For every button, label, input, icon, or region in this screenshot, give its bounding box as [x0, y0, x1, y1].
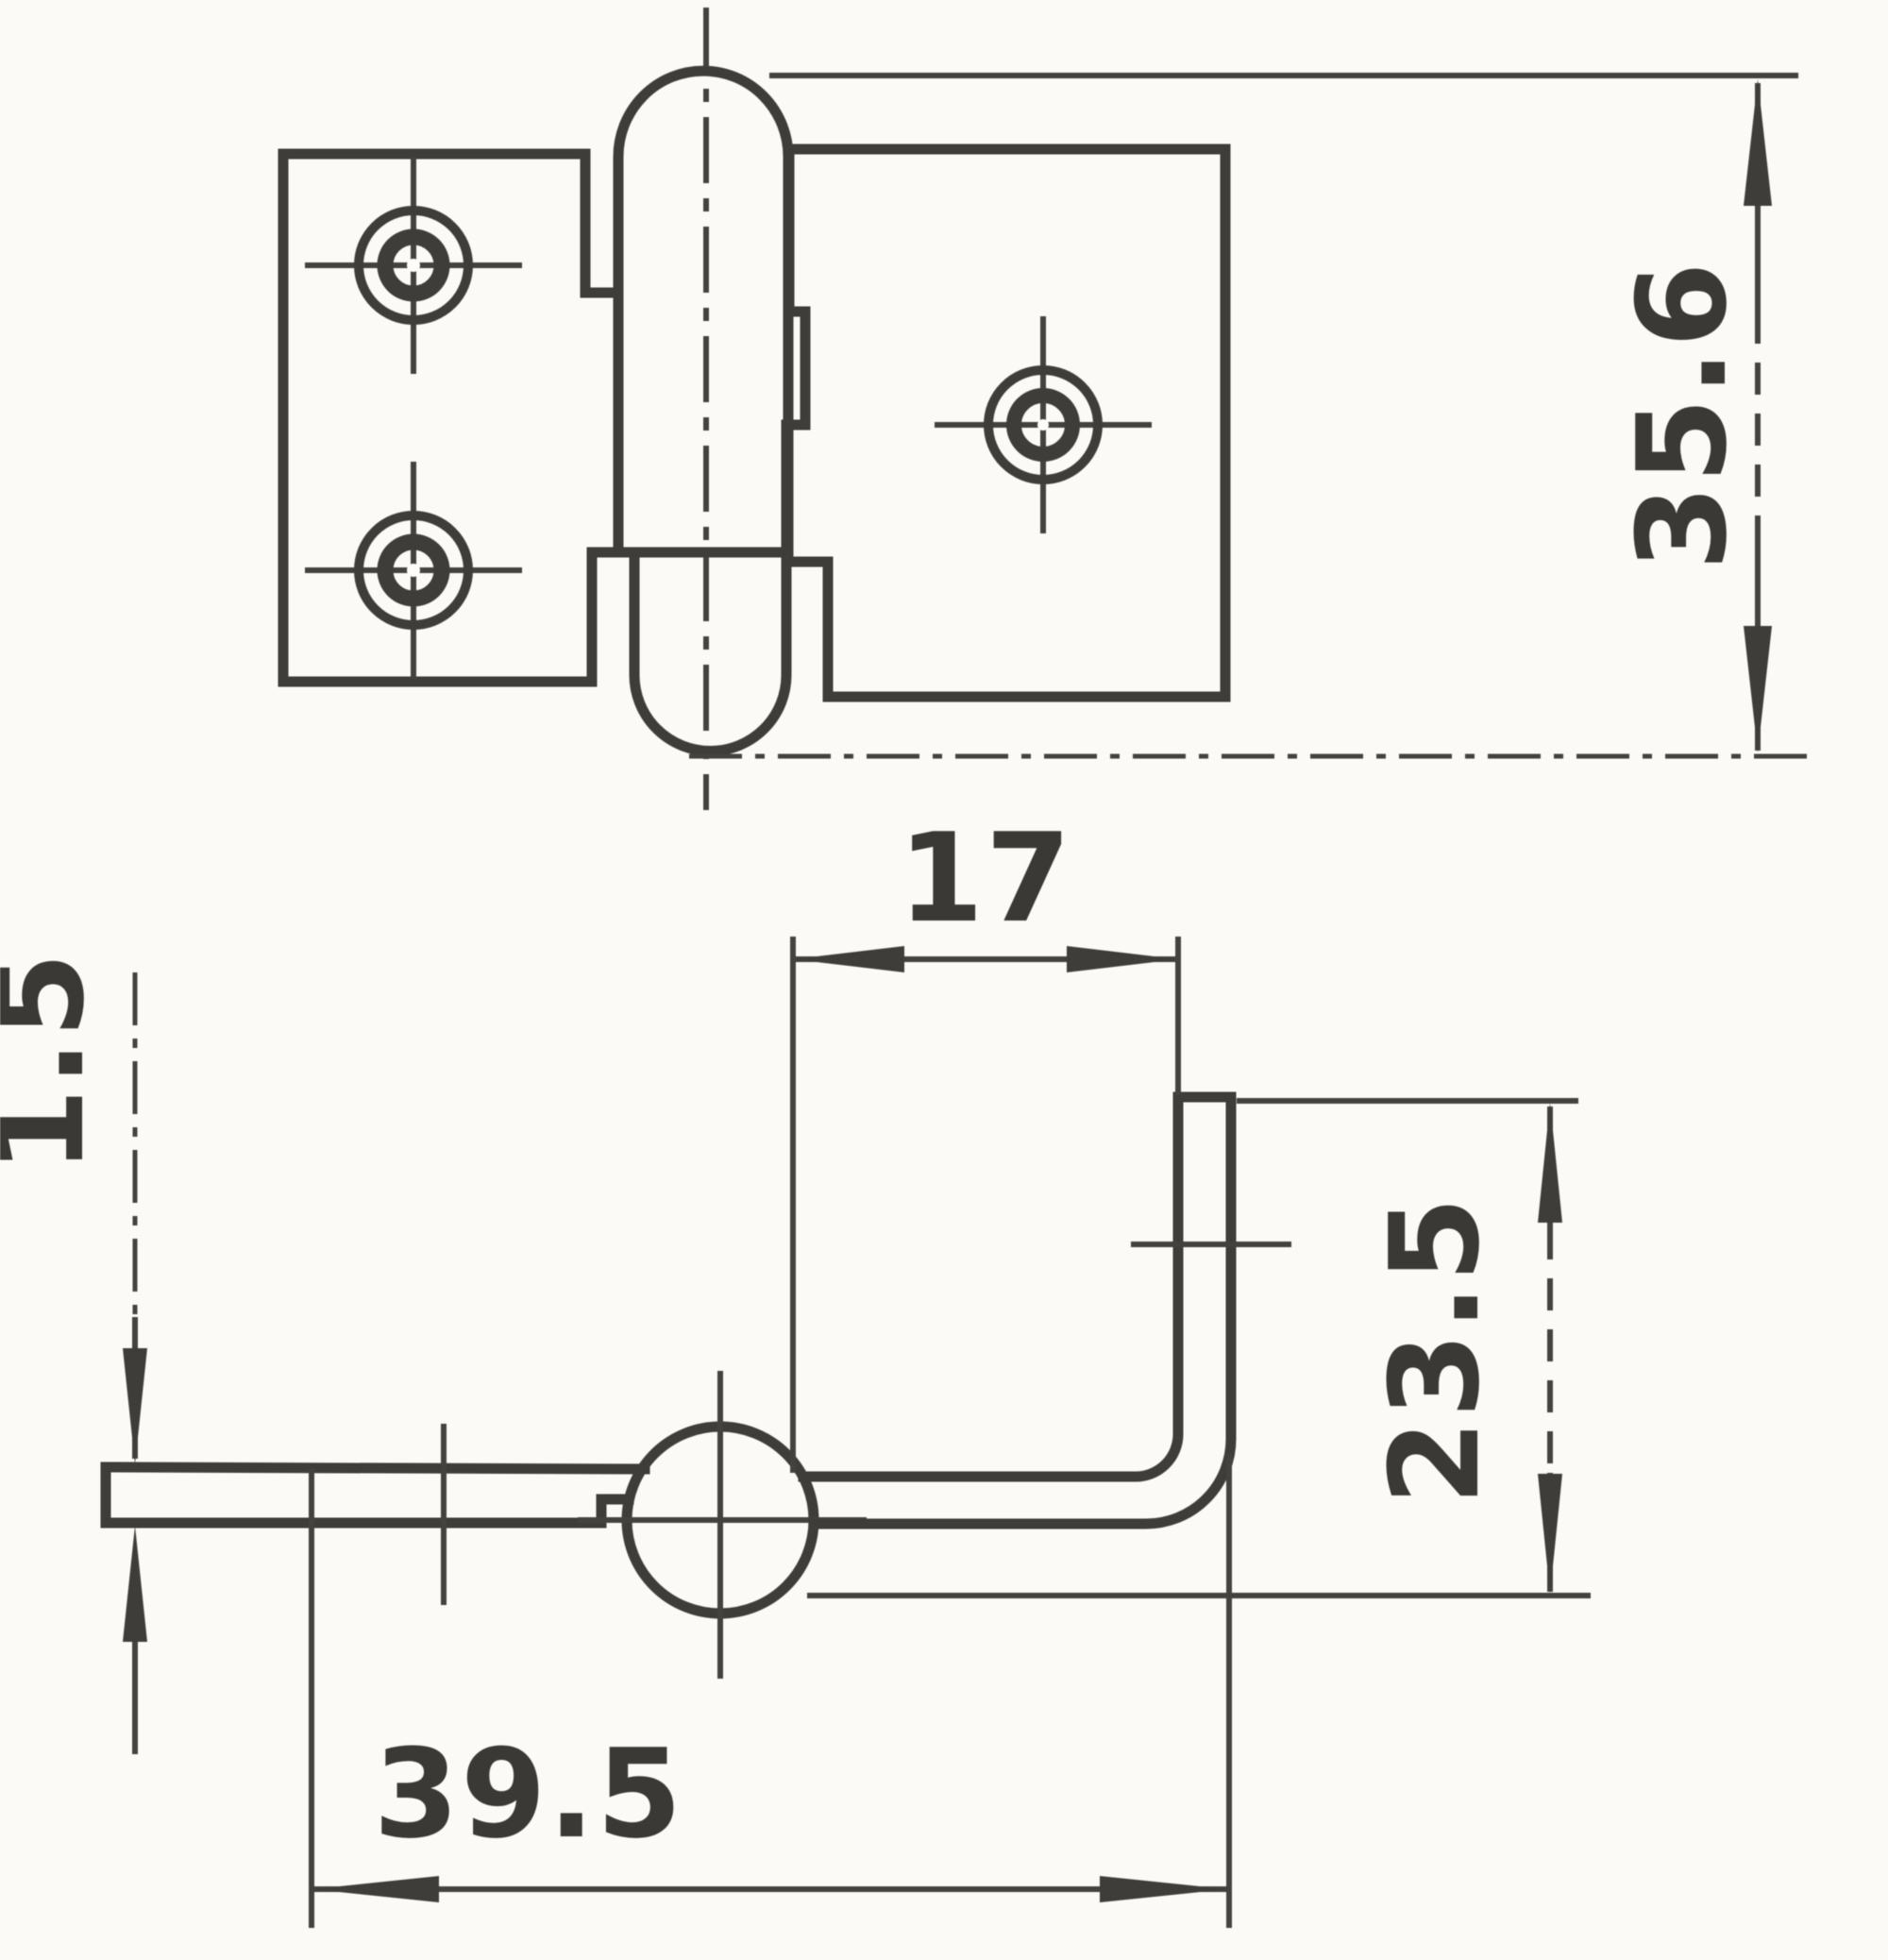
left-leaf-outline — [283, 154, 618, 682]
arrowhead-down — [1744, 626, 1772, 752]
arrowhead-right — [1067, 946, 1178, 972]
screw-hole-marker — [305, 462, 522, 679]
screw-hole-marker — [935, 316, 1152, 533]
arrowhead-up — [1538, 1103, 1562, 1223]
dim-label-leaf-thickness: 1.5 — [0, 951, 111, 1174]
side-view: 1.5 17 23.5 39.5 — [0, 806, 1591, 1928]
hinge-knuckle-lower — [634, 555, 786, 752]
dim-label-bracket-height: 23.5 — [1363, 1195, 1507, 1506]
drawing-sheet: 35.6 1.5 — [0, 0, 1888, 1960]
screw-hole-marker — [305, 157, 522, 374]
dimension-barrel-length: 35.6 — [689, 76, 1809, 756]
arrowhead-left — [312, 1876, 439, 1902]
dim-label-leaf-inset: 17 — [899, 806, 1073, 950]
dim-label-barrel-length: 35.6 — [1610, 261, 1754, 571]
arrowhead-up — [123, 1526, 147, 1642]
arrowhead-down — [1538, 1474, 1562, 1594]
dimension-leaf-thickness: 1.5 — [0, 951, 147, 1754]
arrowhead-left — [793, 946, 904, 972]
arrowhead-down — [123, 1348, 147, 1464]
arrowhead-right — [1100, 1876, 1227, 1902]
dim-label-overall-length: 39.5 — [374, 1722, 684, 1866]
dimension-leaf-inset: 17 — [793, 806, 1178, 1473]
plan-view: 35.6 — [283, 8, 1809, 810]
arrowhead-up — [1744, 79, 1772, 206]
hinge-engineering-drawing: 35.6 1.5 — [0, 0, 1888, 1960]
flat-leaf-outline — [106, 1467, 645, 1523]
angle-bracket-leaf — [803, 1097, 1291, 1524]
